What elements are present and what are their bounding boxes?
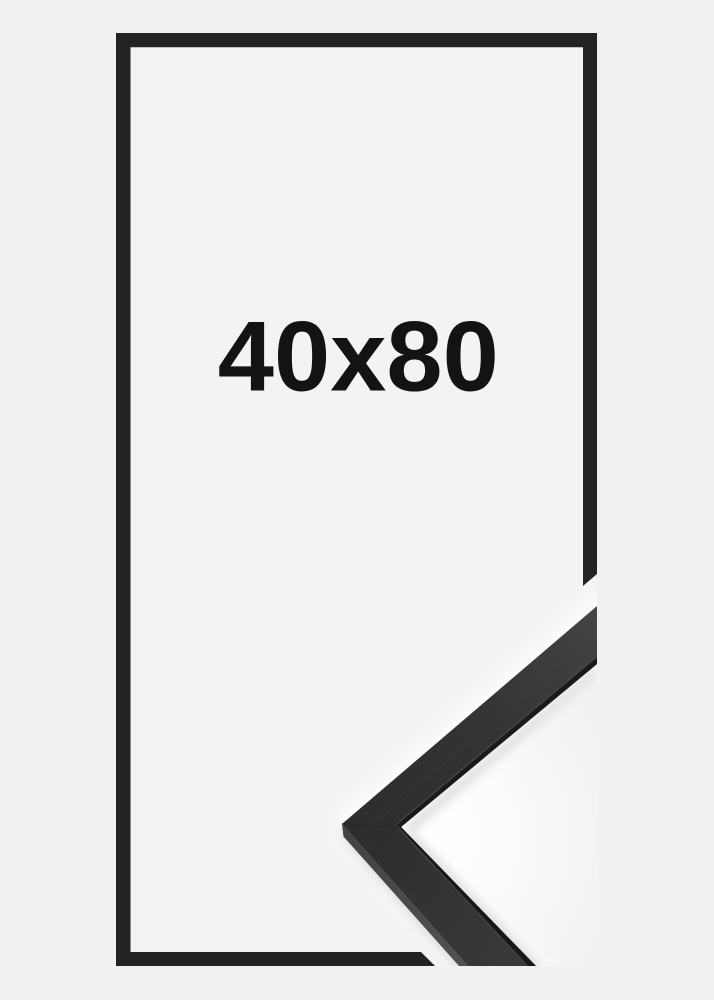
svg-text:40x80: 40x80 [218,301,499,412]
